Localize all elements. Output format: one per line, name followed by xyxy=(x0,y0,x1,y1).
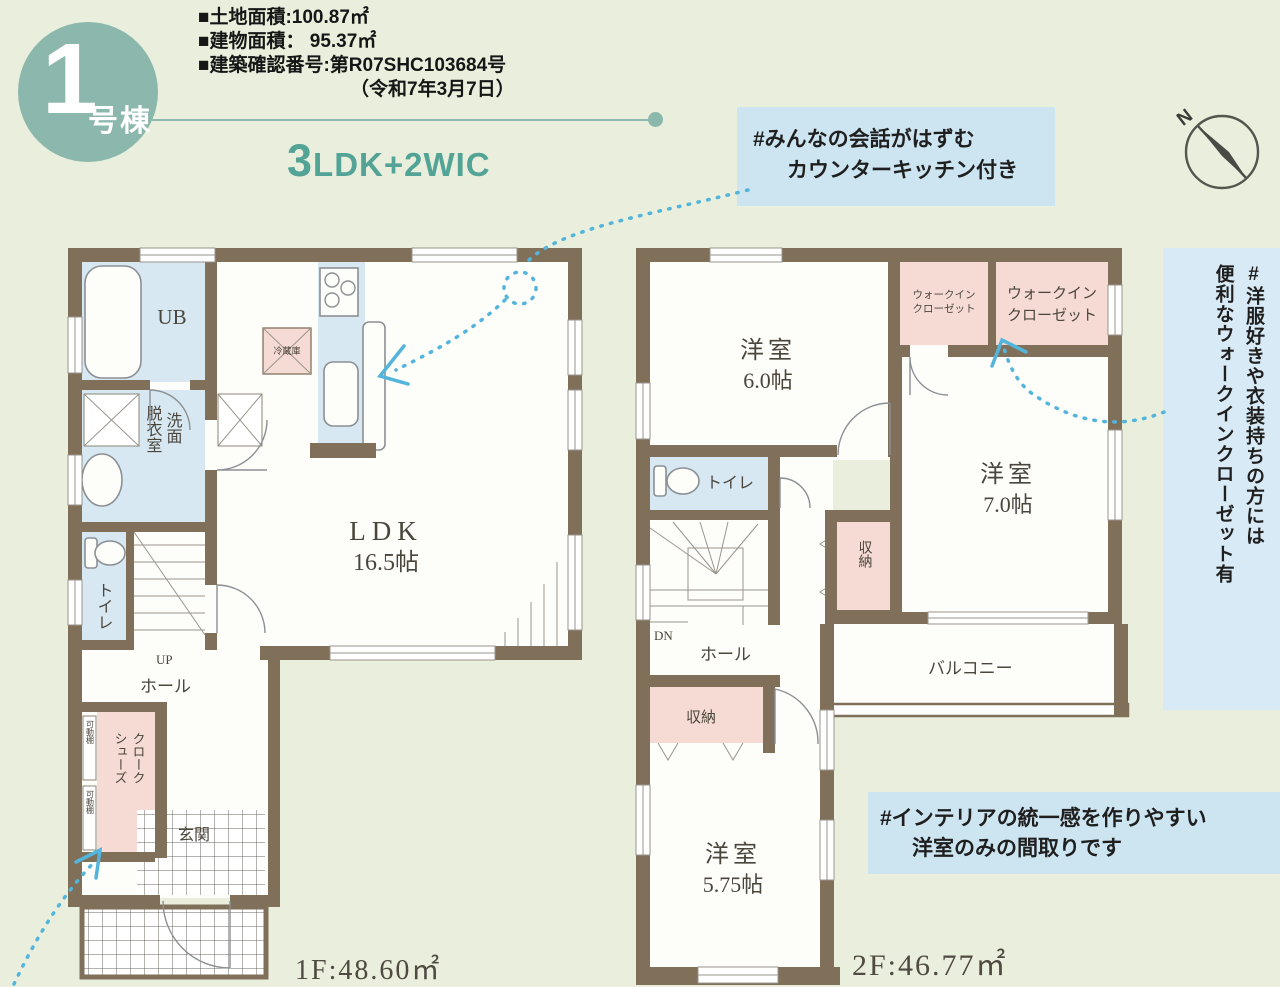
bathtub xyxy=(85,266,141,378)
compass-north-label: N xyxy=(1173,105,1197,130)
confirmation-date: （令和7年3月7日） xyxy=(198,78,515,102)
floor1-plan: 冷蔵庫 UB 脱衣室 洗面 トイレ UP ホール L xyxy=(60,240,590,987)
fridge-space: 冷蔵庫 xyxy=(263,328,311,374)
ub-label: UB xyxy=(157,305,186,329)
bedroom575-size: 5.75帖 xyxy=(703,872,764,897)
hall-label-1f: ホール xyxy=(140,677,191,696)
washing-machine xyxy=(84,394,139,446)
land-area: ■土地面積:100.87㎡ xyxy=(198,6,515,30)
wic-small xyxy=(900,260,988,345)
ldk-size-label: 16.5帖 xyxy=(353,549,419,576)
kitchen-sink xyxy=(324,362,358,426)
bedroom6-label: 洋室 xyxy=(740,337,796,364)
pantry-space xyxy=(218,394,262,446)
shoes-closet-label1: シューズ xyxy=(113,732,128,784)
badge-connector-dot xyxy=(648,112,663,127)
bedroom575-label: 洋室 xyxy=(705,841,761,868)
counter-top xyxy=(363,322,385,450)
stairs-up-label: UP xyxy=(156,652,173,667)
wash-basin xyxy=(82,454,122,506)
toilet-fixture-1f xyxy=(85,538,125,568)
wic-large-label2: クローゼット xyxy=(1007,307,1097,324)
toilet-fixture-2f xyxy=(654,466,699,496)
washroom-label-left: 脱衣室 xyxy=(144,405,163,453)
entrance-label: 玄関 xyxy=(178,826,210,844)
wic-large xyxy=(996,260,1108,350)
floorplan-flyer: 1 号棟 ■土地面積:100.87㎡ ■建物面積： 95.37㎡ ■建築確認番号… xyxy=(0,0,1280,987)
shoes-closet-label2: クローク xyxy=(131,732,146,784)
hall-label-2f: ホール xyxy=(700,645,751,664)
shelf-label-2: 可動棚 xyxy=(86,790,95,815)
compass-needle xyxy=(1197,125,1247,179)
stove xyxy=(320,268,358,316)
compass: N xyxy=(1172,100,1272,200)
balcony-label: バルコニー xyxy=(928,659,1013,678)
toilet-label-1f: トイレ xyxy=(95,582,113,630)
bedroom7-size: 7.0帖 xyxy=(983,492,1033,517)
storage-upper-label: 収納 xyxy=(857,540,873,569)
floor2-area-label: 2F:46.77㎡ xyxy=(852,940,1008,984)
floor2-plan: ウォークイン クローゼット ウォークイン クローゼット 洋室 6.0帖 洋室 7… xyxy=(628,240,1158,987)
toilet-label-2f: トイレ xyxy=(706,475,754,492)
svg-text:冷蔵庫: 冷蔵庫 xyxy=(273,345,300,356)
bedroom6-size: 6.0帖 xyxy=(743,368,793,393)
wic-large-label1: ウォークイン xyxy=(1007,285,1097,302)
floor1-area-label: 1F:48.60㎡ xyxy=(295,948,441,987)
building-area: ■建物面積： 95.37㎡ xyxy=(198,30,515,54)
wic-note: #洋服好きや衣装持ちの方には 便利なウォークインクローゼット有 xyxy=(1163,248,1280,710)
property-info: ■土地面積:100.87㎡ ■建物面積： 95.37㎡ ■建築確認番号:第R07… xyxy=(198,6,515,102)
confirmation-number: ■建築確認番号:第R07SHC103684号 xyxy=(198,54,515,78)
unit-suffix: 号棟 xyxy=(88,96,152,140)
wic-small-label2: クローゼット xyxy=(913,303,976,315)
storage-lower-label: 収納 xyxy=(686,709,716,726)
layout-type: 3LDK+2WIC xyxy=(287,135,491,187)
badge-connector-line xyxy=(152,119,652,121)
washroom-label-right: 洗面 xyxy=(164,412,183,444)
porch xyxy=(82,907,266,977)
stairs-down-label: DN xyxy=(654,628,673,643)
unit-badge: 1 号棟 xyxy=(18,22,158,162)
bedroom7-label: 洋室 xyxy=(980,461,1036,488)
wic-small-label1: ウォークイン xyxy=(913,289,976,301)
kitchen-note: #みんなの会話がはずむ カウンターキッチン付き xyxy=(737,107,1055,206)
ldk-label: LDK xyxy=(349,516,423,546)
shelf-label-1: 可動棚 xyxy=(86,720,95,745)
